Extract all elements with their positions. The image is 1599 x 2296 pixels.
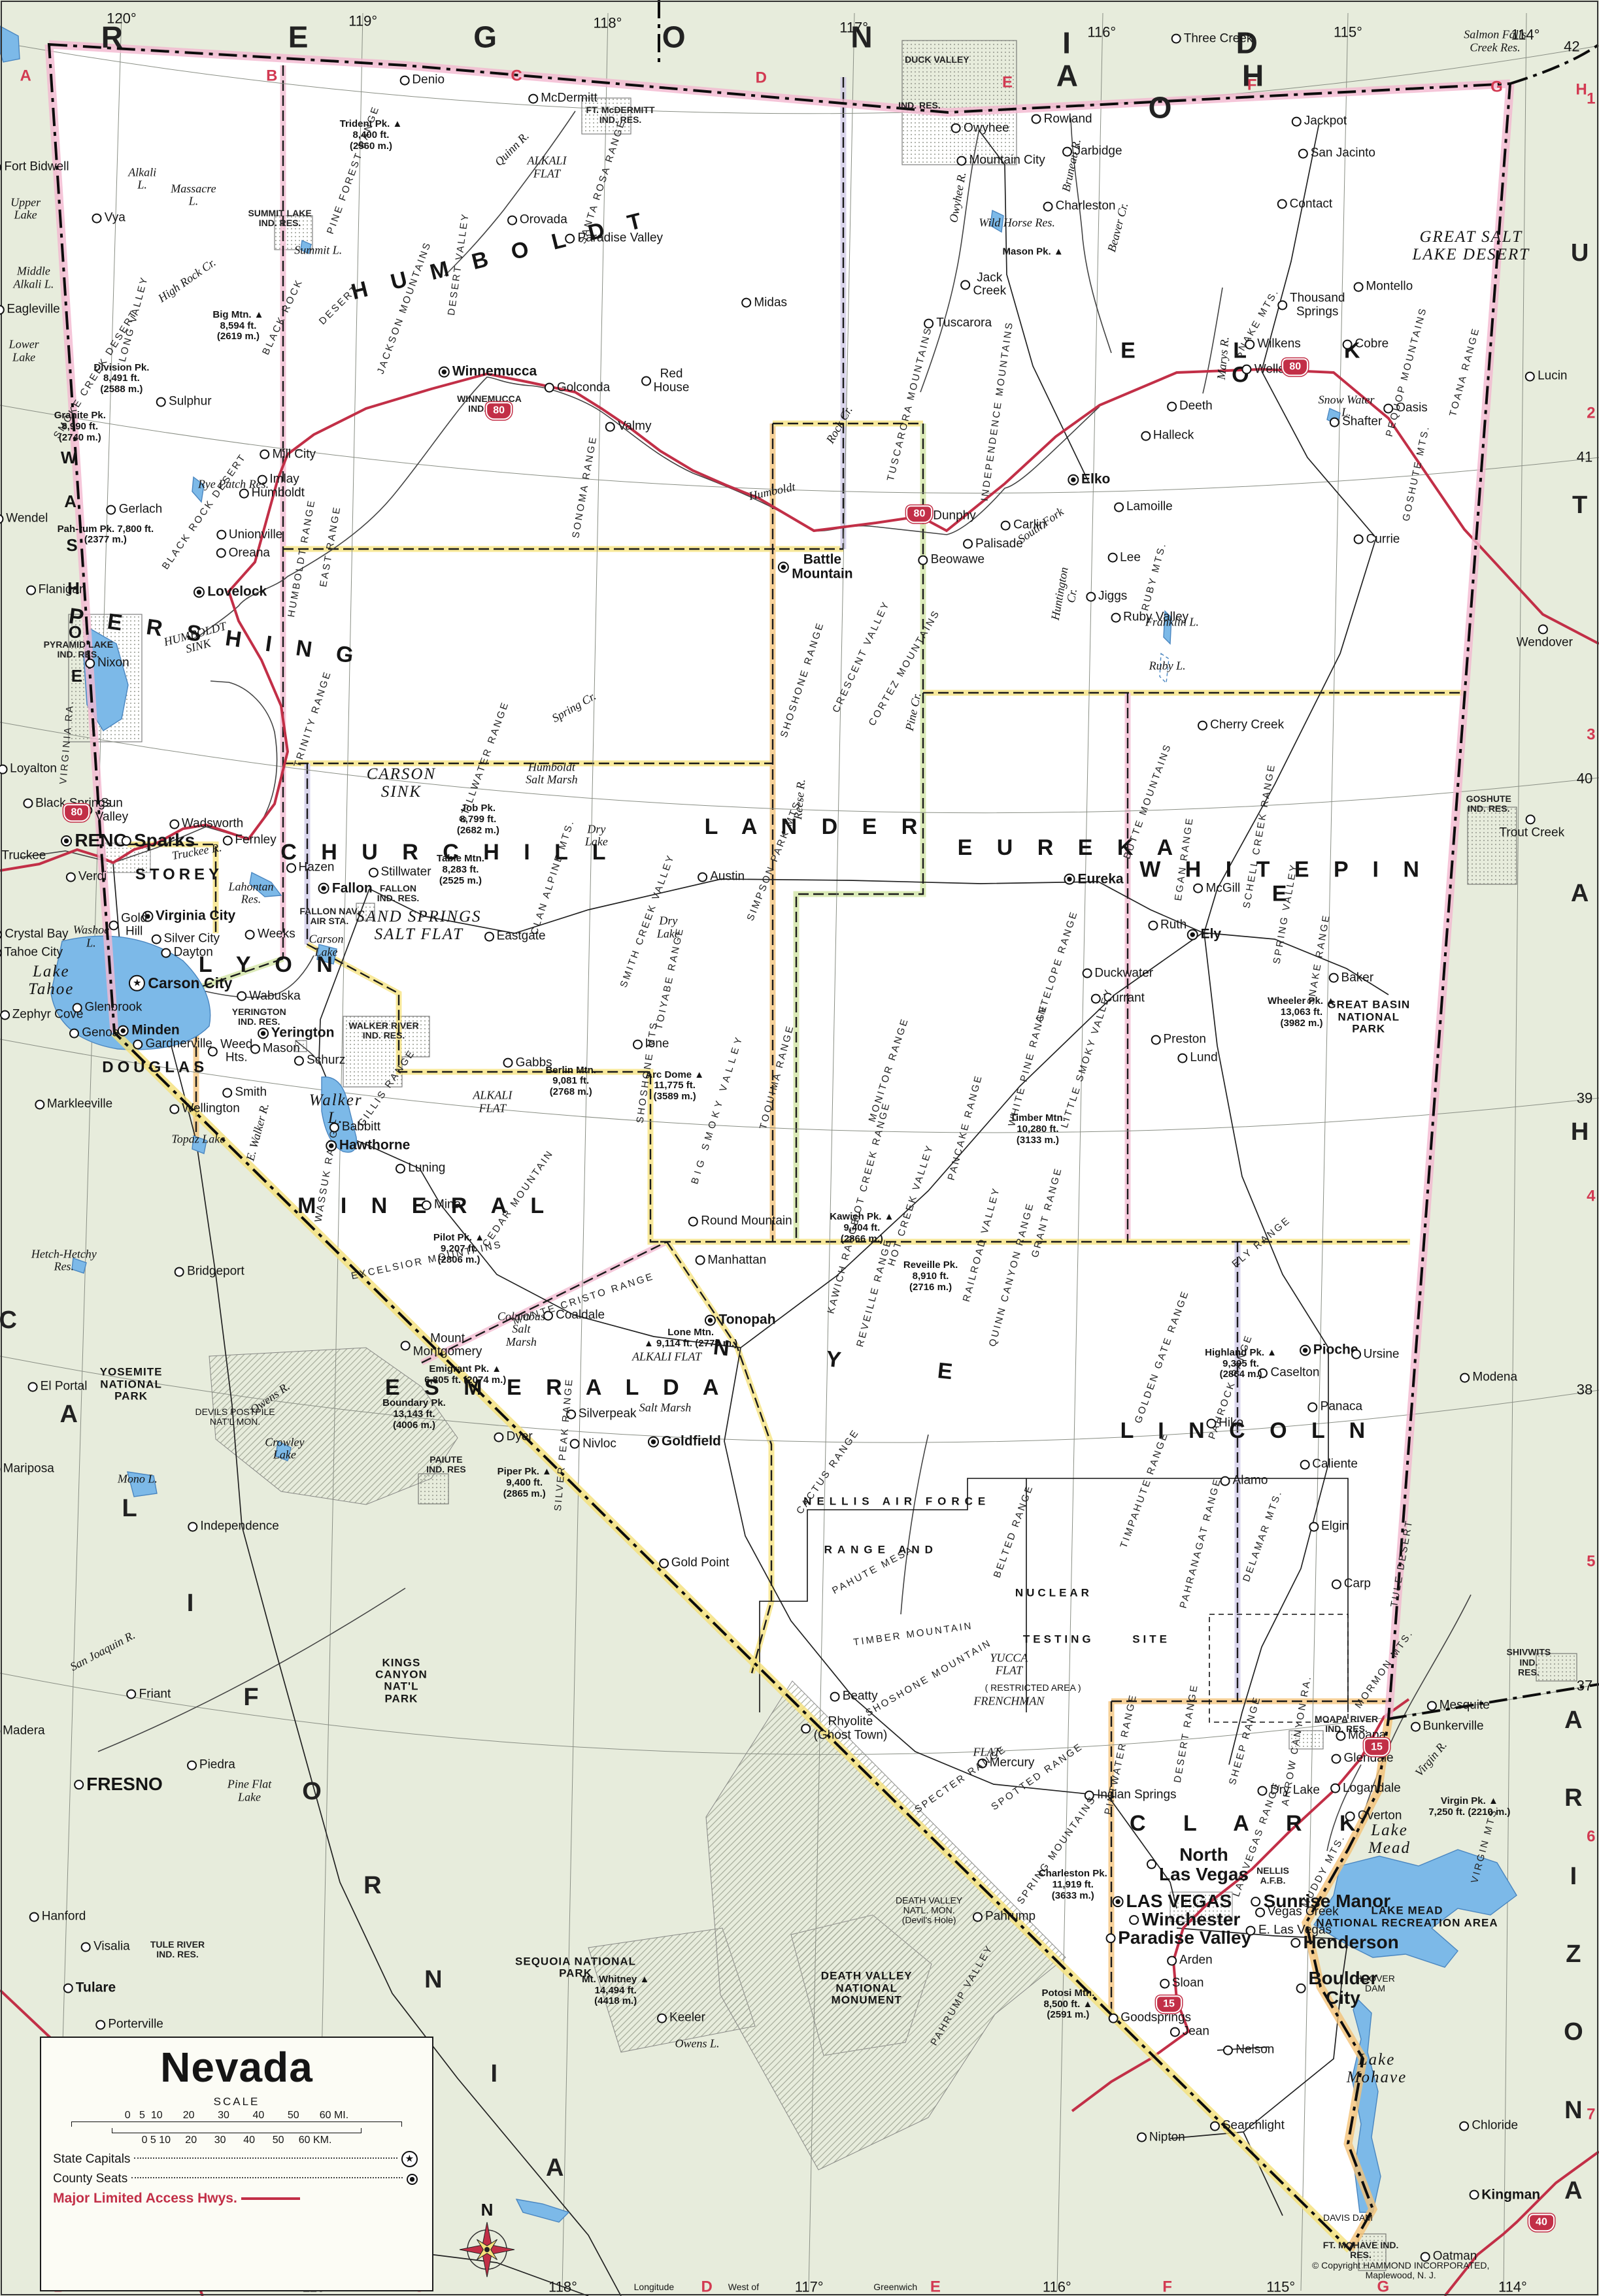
label-text: WALKER RIVER IND. RES. xyxy=(348,1021,418,1040)
label-text: Ely xyxy=(1201,927,1222,942)
map-label-115: 115° xyxy=(1334,24,1362,41)
map-label-yerington: YERINGTON IND. RES. xyxy=(232,1007,286,1027)
map-label-schurz: Schurz xyxy=(294,1054,345,1068)
state-arizona-letter: N xyxy=(1564,2096,1582,2123)
town-dot-icon xyxy=(545,383,554,393)
county-seat-dot-icon xyxy=(1068,474,1079,486)
label-text: Elko xyxy=(1081,473,1110,488)
town-dot-icon xyxy=(973,1912,983,1922)
map-label-middle: Middle Alkali L. xyxy=(13,265,54,291)
label-text: Fernley xyxy=(235,833,276,847)
label-text: Orovada xyxy=(520,214,567,227)
label-text: Sloan xyxy=(1172,1977,1204,1991)
map-label-f: F xyxy=(1162,2278,1172,2296)
label-text: Eureka xyxy=(1078,872,1124,887)
label-text: F xyxy=(1247,76,1257,93)
label-text: Charleston Pk. 11,919 ft. (3633 m.) xyxy=(1039,1869,1107,1901)
map-label-42: 42 xyxy=(1564,38,1579,54)
label-text: Yerington xyxy=(271,1026,335,1041)
town-dot-icon xyxy=(0,948,1,957)
map-label-golconda: Golconda xyxy=(545,381,610,395)
red-highway-line-icon xyxy=(241,2197,300,2200)
map-label-little-smoky-valley: LITTLE SMOKY VALLEY xyxy=(1060,987,1115,1129)
town-dot-icon xyxy=(1329,973,1339,983)
map-label-midas: Midas xyxy=(741,296,787,310)
map-label-f: F xyxy=(1247,76,1257,94)
label-text: Round Mountain xyxy=(701,1215,792,1229)
label-text: Eagleville xyxy=(7,303,59,317)
label-text: Virgin R. xyxy=(1413,1739,1450,1780)
map-label-e: E xyxy=(1002,74,1013,92)
map-label-ruby-l: Ruby L. xyxy=(1149,659,1186,673)
state-oregon: O R E G O N xyxy=(0,20,951,54)
map-label-virginia-ra: VIRGINIA RA. xyxy=(58,699,76,784)
label-text: FRESNO xyxy=(86,1774,163,1794)
label-text: Mount Montgomery xyxy=(413,1332,482,1359)
map-label-5: 5 xyxy=(1587,1553,1595,1571)
label-text: Palisade xyxy=(975,537,1023,551)
label-text: G xyxy=(1377,2278,1389,2295)
label-text: F xyxy=(243,1684,258,1710)
map-label-duckwater: Duckwater xyxy=(1082,967,1153,980)
map-label-nipton: Nipton xyxy=(1137,2131,1185,2144)
label-text: Job Pk. 8,799 ft. (2682 m.) xyxy=(457,803,499,836)
town-dot-icon xyxy=(151,934,161,944)
map-label-pilot-pk: Pilot Pk. ▲ 9,207 ft. (2806 m.) xyxy=(433,1233,484,1265)
map-label-testing: TESTING xyxy=(1023,1633,1094,1646)
label-text: Smith xyxy=(235,1086,267,1100)
map-label-wells: Wells xyxy=(1242,363,1285,376)
town-dot-icon xyxy=(1111,612,1120,622)
map-label-g: G xyxy=(1490,78,1503,96)
label-text: Mountain City xyxy=(969,154,1045,168)
map-label-weeks: Weeks xyxy=(245,927,295,941)
label-text: Panaca xyxy=(1321,1401,1362,1414)
town-dot-icon xyxy=(222,1088,232,1098)
map-label-reveille-range: REVEILLE RANGE xyxy=(855,1237,894,1348)
map-label-lahontan: Lahontan Res. xyxy=(229,880,274,906)
label-text: Wabuska xyxy=(249,990,301,1003)
state-capital-icon: ★ xyxy=(401,2151,418,2167)
map-label-114: 114° xyxy=(1498,2278,1527,2295)
label-text: Salt Marsh xyxy=(639,1401,692,1414)
map-label-7: 7 xyxy=(1587,2106,1595,2123)
label-text: Rye Patch Res. xyxy=(198,478,269,491)
label-text: CARSON SINK xyxy=(367,765,436,801)
label-text: Quinn R. xyxy=(492,130,531,169)
label-text: LITTLE SMOKY VALLEY xyxy=(1060,987,1115,1129)
label-text: TULE RIVER IND. RES. xyxy=(150,1939,205,1959)
town-dot-icon xyxy=(1330,1784,1340,1793)
label-text: Silverpeak xyxy=(579,1408,637,1422)
label-text: 1 xyxy=(1587,90,1595,107)
label-text: Gold Hill xyxy=(121,912,147,939)
map-label-timpahute-range: TIMPAHUTE RANGE xyxy=(1119,1431,1171,1550)
label-text: L A N D E R xyxy=(705,815,927,839)
label-text: DUCK VALLEY xyxy=(905,55,969,65)
label-text: Caliente xyxy=(1312,1458,1358,1472)
map-label-bunkerville: Bunkerville xyxy=(1411,1720,1484,1733)
label-text: Longitude xyxy=(634,2282,675,2292)
map-label-hetch-hetchy: Hetch-Hetchy Res. xyxy=(31,1248,97,1273)
label-text: Weeks xyxy=(258,927,295,941)
town-dot-icon xyxy=(963,539,973,549)
town-dot-icon xyxy=(1296,1984,1305,1993)
map-label-tuscarora-mountains: TUSCARORA MOUNTAINS xyxy=(885,325,934,482)
label-text: Hawthorne xyxy=(339,1139,411,1154)
label-text: H xyxy=(1571,1119,1589,1146)
map-label-sloan: Sloan xyxy=(1160,1977,1204,1991)
map-label-nellis: NELLIS A.F.B. xyxy=(1256,1866,1289,1886)
map-label-carson-city: ★Carson City xyxy=(129,974,232,991)
town-dot-icon xyxy=(1147,1859,1156,1869)
state-california-letter: F xyxy=(243,1683,258,1710)
label-text: 115° xyxy=(1266,2280,1295,2295)
map-label-wadsworth: Wadsworth xyxy=(169,818,243,831)
label-text: Gerlach xyxy=(119,503,163,516)
map-label-black-rock: BLACK ROCK xyxy=(261,277,305,357)
map-label-alkali: ALKALI FLAT xyxy=(473,1090,512,1115)
label-text: TRINITY RANGE xyxy=(293,669,334,769)
label-text: A xyxy=(1564,1706,1582,1733)
map-label-spring-cr: Spring Cr. xyxy=(550,690,598,725)
town-dot-icon xyxy=(957,156,967,165)
map-label-summit-l: Summit L. xyxy=(294,244,342,258)
label-text: Wells xyxy=(1254,363,1285,376)
town-dot-icon xyxy=(73,1003,82,1013)
label-text: Piedra xyxy=(199,1759,235,1772)
label-text: El Portal xyxy=(41,1380,88,1393)
town-dot-icon xyxy=(1411,1722,1421,1731)
county-seat-dot-icon xyxy=(118,1025,129,1037)
label-text: Truckee xyxy=(1,850,46,863)
map-label-40: 40 xyxy=(1577,770,1592,786)
label-text: Henderson xyxy=(1303,1933,1398,1953)
label-text: Porterville xyxy=(108,2018,163,2032)
label-text: Dry Lake xyxy=(657,915,680,940)
capital-dot-icon: ★ xyxy=(129,975,145,991)
state-california-letter: A xyxy=(546,2154,564,2181)
label-text: Jackpot xyxy=(1304,115,1347,129)
town-dot-icon xyxy=(156,397,166,407)
label-text: Pahrump xyxy=(985,1910,1035,1924)
town-dot-icon xyxy=(109,920,118,930)
map-label-west-of: West of xyxy=(728,2282,759,2292)
label-text: Three Creek xyxy=(1184,32,1253,46)
label-text: Goodsprings xyxy=(1120,2012,1191,2025)
label-text: Elgin xyxy=(1321,1520,1349,1534)
map-label-sulphur: Sulphur xyxy=(156,395,212,408)
label-text: Dry Lake xyxy=(1270,1784,1320,1798)
legend-item-highways: Major Limited Access Hwys. xyxy=(53,2191,420,2206)
map-label-dyer: Dyer xyxy=(494,1431,533,1444)
label-text: NUCLEAR xyxy=(1015,1588,1092,1599)
town-dot-icon xyxy=(695,1256,705,1265)
county-washoe-letter: A xyxy=(64,491,76,510)
label-text: TIMPAHUTE RANGE xyxy=(1119,1431,1171,1550)
map-label-flanigan: Flanigan xyxy=(26,583,86,597)
label-text: Ruby L. xyxy=(1149,660,1186,673)
label-text: Denio xyxy=(412,74,445,88)
map-label-vya: Vya xyxy=(92,211,126,225)
town-dot-icon xyxy=(1298,149,1308,159)
map-label-goodsprings: Goodsprings xyxy=(1108,2012,1191,2025)
label-text: Tonopah xyxy=(718,1313,775,1328)
state-arizona-letter: O xyxy=(1564,2018,1583,2046)
label-text: Dayton xyxy=(174,946,213,959)
town-dot-icon xyxy=(188,1522,197,1532)
map-label-4: 4 xyxy=(1587,1188,1595,1205)
label-text: Crystal Bay xyxy=(5,927,68,941)
map-label-north: North Las Vegas xyxy=(1147,1844,1249,1884)
map-label-salt-marsh: Salt Marsh xyxy=(639,1401,692,1414)
map-label-piper-pk: Piper Pk. ▲ 9,400 ft. (2865 m.) xyxy=(497,1467,552,1499)
label-text: Upper Lake xyxy=(10,196,41,222)
map-label-toiyabe-range: TOIYABE RANGE xyxy=(654,926,686,1031)
map-label-virgin-r: Virgin R. xyxy=(1413,1739,1450,1779)
map-label-nelson: Nelson xyxy=(1223,2044,1274,2057)
town-dot-icon xyxy=(507,216,517,225)
legend-miles-ticks: 0 5 10 20 30 40 50 60 MI. xyxy=(53,2110,420,2121)
label-text: Halleck xyxy=(1153,429,1194,443)
label-text: SNAKE RANGE xyxy=(1306,913,1332,1006)
map-label-alamo: Alamo xyxy=(1220,1474,1268,1488)
town-dot-icon xyxy=(1343,339,1353,349)
label-text: I xyxy=(187,1589,194,1616)
map-label-mariposa: Mariposa xyxy=(0,1463,54,1476)
label-text: Wheeler Pk. ▲ 13,063 ft. (3982 m.) xyxy=(1268,996,1336,1029)
label-text: NELLIS A.F.B. xyxy=(1256,1866,1289,1886)
map-label-three-creek: Three Creek xyxy=(1171,32,1253,46)
town-dot-icon xyxy=(494,1432,504,1442)
town-dot-icon xyxy=(570,1439,580,1449)
label-text: E U R E K A xyxy=(958,836,1183,860)
town-dot-icon xyxy=(1167,1955,1177,1965)
map-label-fallon: Fallon xyxy=(318,881,373,896)
label-text: TULE DESERT xyxy=(1389,1519,1415,1608)
label-text: Dyer xyxy=(507,1431,533,1444)
label-text: YOSEMITE NATIONAL PARK xyxy=(100,1367,163,1403)
map-label-preston: Preston xyxy=(1151,1033,1205,1047)
label-text: FRENCHMAN xyxy=(973,1695,1044,1708)
map-label-reno: RENO xyxy=(61,830,127,851)
label-text: O xyxy=(1564,2019,1583,2046)
label-text: Pine Flat Lake xyxy=(227,1778,271,1804)
label-text: Paradise Valley xyxy=(1118,1929,1251,1948)
map-label-mesquite: Mesquite xyxy=(1427,1699,1490,1713)
label-text: Mill City xyxy=(273,448,316,461)
label-text: RANGE AND xyxy=(824,1544,938,1556)
map-label-wellington: Wellington xyxy=(169,1102,239,1116)
map-label-jackson-mountains: JACKSON MOUNTAINS xyxy=(375,240,433,376)
label-text: Jack Creek xyxy=(973,271,1006,298)
map-label-glenbrook: Glenbrook xyxy=(73,1001,143,1015)
town-dot-icon xyxy=(74,1780,84,1789)
label-text: DEATH VALLEY NATIONAL MONUMENT xyxy=(821,1971,913,2006)
map-label-hiko: Hiko xyxy=(1206,1417,1243,1431)
legend: Nevada SCALE 0 5 10 20 30 40 50 60 MI. 0… xyxy=(40,2037,433,2291)
county-seat-dot-icon xyxy=(1113,1896,1124,1907)
map-label-friant: Friant xyxy=(127,1688,171,1701)
town-dot-icon xyxy=(1332,1579,1341,1589)
label-text: LAKE MEAD NATIONAL RECREATION AREA xyxy=(1316,1905,1498,1929)
map-label-tule-river: TULE RIVER IND. RES. xyxy=(150,1939,205,1959)
label-text: Z xyxy=(1566,1941,1581,1968)
town-dot-icon xyxy=(1130,1915,1139,1925)
map-label-luning: Luning xyxy=(396,1162,445,1176)
label-text: Humboldt xyxy=(748,480,796,503)
town-dot-icon xyxy=(23,799,33,808)
town-dot-icon xyxy=(659,1559,669,1569)
label-text: Contact xyxy=(1290,197,1332,211)
label-text: Keeler xyxy=(669,2012,705,2025)
town-dot-icon xyxy=(0,514,3,524)
map-label-henderson: Henderson xyxy=(1290,1932,1398,1953)
label-text: Fallon xyxy=(332,881,373,896)
state-california-letter: C xyxy=(0,1306,17,1334)
label-text: Wellington xyxy=(182,1102,239,1116)
label-text: TOQUIMA RANGE xyxy=(758,1023,796,1131)
label-text: Charleston xyxy=(1056,200,1116,214)
map-label-hot-creek-valley: HOT CREEK VALLEY xyxy=(886,1143,936,1267)
label-text: Hetch-Hetchy Res. xyxy=(31,1248,97,1273)
label-text: Tahoe City xyxy=(4,946,63,959)
label-text: RUBY MTS. xyxy=(1140,541,1169,612)
label-text: Battle Mountain xyxy=(792,552,852,582)
map-label-a: A xyxy=(20,67,31,85)
label-text: 115° xyxy=(1334,25,1362,41)
label-text: Dunphy xyxy=(933,510,976,524)
town-dot-icon xyxy=(1525,371,1535,381)
map-label-winchester: Winchester xyxy=(1130,1909,1241,1930)
label-text: Friant xyxy=(139,1688,171,1701)
town-dot-icon xyxy=(1086,592,1096,602)
town-dot-icon xyxy=(35,1099,44,1109)
label-text: Fort Bidwell xyxy=(4,161,69,175)
county-eureka: E U R E K A xyxy=(958,835,1183,859)
label-text: Midas xyxy=(754,296,787,310)
state-arizona-letter: R xyxy=(1564,1784,1582,1811)
label-text: Lower Lake xyxy=(9,339,39,364)
state-utah-letter: U xyxy=(1571,239,1589,266)
map-label-carson: Carson Lake xyxy=(309,933,343,959)
map-label-2: 2 xyxy=(1587,405,1595,422)
town-dot-icon xyxy=(1427,1701,1437,1711)
map-label-sand-springs: SAND SPRINGS SALT FLAT xyxy=(356,908,481,943)
label-text: Glenbrook xyxy=(85,1001,143,1015)
map-label-franklin-l: Franklin L. xyxy=(1145,616,1199,629)
town-dot-icon xyxy=(1043,202,1053,212)
label-text: Flanigan xyxy=(39,583,86,597)
label-text: YERINGTON IND. RES. xyxy=(232,1007,286,1027)
town-dot-icon xyxy=(1538,624,1548,634)
label-text: Salmon Falls Creek Res. xyxy=(1464,29,1526,54)
county-washoe-letter: E xyxy=(71,665,82,685)
map-label-rye-patch-res: Rye Patch Res. xyxy=(198,478,269,491)
label-text: Overton xyxy=(1358,1809,1402,1823)
map-label-madera: Madera xyxy=(0,1724,45,1738)
map-label-pine-cr: Pine Cr. xyxy=(902,691,923,732)
label-text: 116° xyxy=(1043,2280,1071,2295)
label-text: TIMBER MOUNTAIN xyxy=(852,1621,973,1648)
map-label-battle: Battle Mountain xyxy=(778,552,852,582)
label-text: Ruth xyxy=(1160,918,1187,932)
town-dot-icon xyxy=(1194,884,1203,893)
town-dot-icon xyxy=(0,1010,10,1020)
label-text: Preston xyxy=(1163,1033,1205,1047)
state-california-letter: A xyxy=(59,1401,77,1428)
county-humboldt: H U M B O L D T xyxy=(348,205,652,304)
label-text: FALLON IND. RES. xyxy=(377,883,420,903)
label-text: Thousand Springs xyxy=(1290,292,1345,319)
label-text: E xyxy=(1002,75,1013,92)
town-dot-icon xyxy=(1277,199,1287,209)
label-text: Nipton xyxy=(1149,2131,1185,2144)
label-text: A xyxy=(546,2154,564,2181)
map-label-115: 115° xyxy=(1266,2278,1295,2295)
state-utah-letter: H xyxy=(1571,1118,1589,1146)
map-label-job-pk: Job Pk. 8,799 ft. (2682 m.) xyxy=(457,803,499,836)
map-label-trinity-range: TRINITY RANGE xyxy=(293,669,334,769)
map-label-sequoia-national: SEQUOIA NATIONAL PARK xyxy=(515,1955,636,1980)
label-text: Goldfield xyxy=(662,1435,721,1450)
map-label-eastgate: Eastgate xyxy=(484,930,546,944)
map-label-site: SITE xyxy=(1132,1633,1170,1646)
town-dot-icon xyxy=(29,1912,39,1922)
town-dot-icon xyxy=(28,1382,38,1391)
label-text: Cobre xyxy=(1355,338,1389,352)
state-california-letter: I xyxy=(491,2059,498,2087)
map-label-pahranagat-range: PAHRANAGAT RANGE xyxy=(1178,1476,1223,1610)
label-text: H U M B O L D T xyxy=(348,207,652,304)
label-text: 117° xyxy=(795,2280,824,2295)
label-text: Rhyolite (Ghost Town) xyxy=(814,1716,888,1742)
town-dot-icon xyxy=(1526,815,1536,825)
map-label-mormon-mts: MORMON MTS. xyxy=(1354,1628,1416,1710)
label-text: O R E G O N xyxy=(0,22,951,54)
map-label-dayton: Dayton xyxy=(161,946,213,959)
label-text: Imlay xyxy=(269,473,299,487)
town-dot-icon xyxy=(1107,553,1117,563)
map-label-grant-range: GRANT RANGE xyxy=(1030,1166,1065,1259)
label-text: BIG SMOKY VALLEY xyxy=(690,1033,746,1186)
map-label-verdi: Verdi xyxy=(66,871,107,884)
label-text: 39 xyxy=(1577,1090,1592,1106)
state-california-letter: R xyxy=(363,1871,381,1899)
map-label-lucin: Lucin xyxy=(1525,370,1567,384)
town-dot-icon xyxy=(133,1040,143,1050)
map-label-h: H xyxy=(1575,81,1587,99)
map-label-caliente: Caliente xyxy=(1300,1458,1358,1472)
label-text: Boundary Pk. 13,143 ft. (4006 m.) xyxy=(382,1398,446,1431)
map-label-mcdermitt: McDermitt xyxy=(528,92,598,106)
town-dot-icon xyxy=(657,2013,667,2023)
label-text: L xyxy=(122,1495,137,1522)
label-text: Caselton xyxy=(1270,1366,1319,1380)
town-dot-icon xyxy=(169,820,179,829)
label-text: JACKSON MOUNTAINS xyxy=(375,240,433,375)
label-text: Silver City xyxy=(163,932,220,946)
label-text: TOANA RANGE xyxy=(1447,326,1481,418)
label-text: Piper Pk. ▲ 9,400 ft. (2865 m.) xyxy=(497,1467,552,1499)
label-text: 119° xyxy=(348,13,377,29)
label-text: Searchlight xyxy=(1222,2120,1285,2133)
map-label-unionville: Unionville xyxy=(216,528,282,542)
town-dot-icon xyxy=(222,835,232,845)
map-label-crowley: Crowley Lake xyxy=(265,1436,304,1461)
map-label-duck-valley: DUCK VALLEY xyxy=(905,54,969,65)
town-dot-icon xyxy=(633,1040,643,1050)
